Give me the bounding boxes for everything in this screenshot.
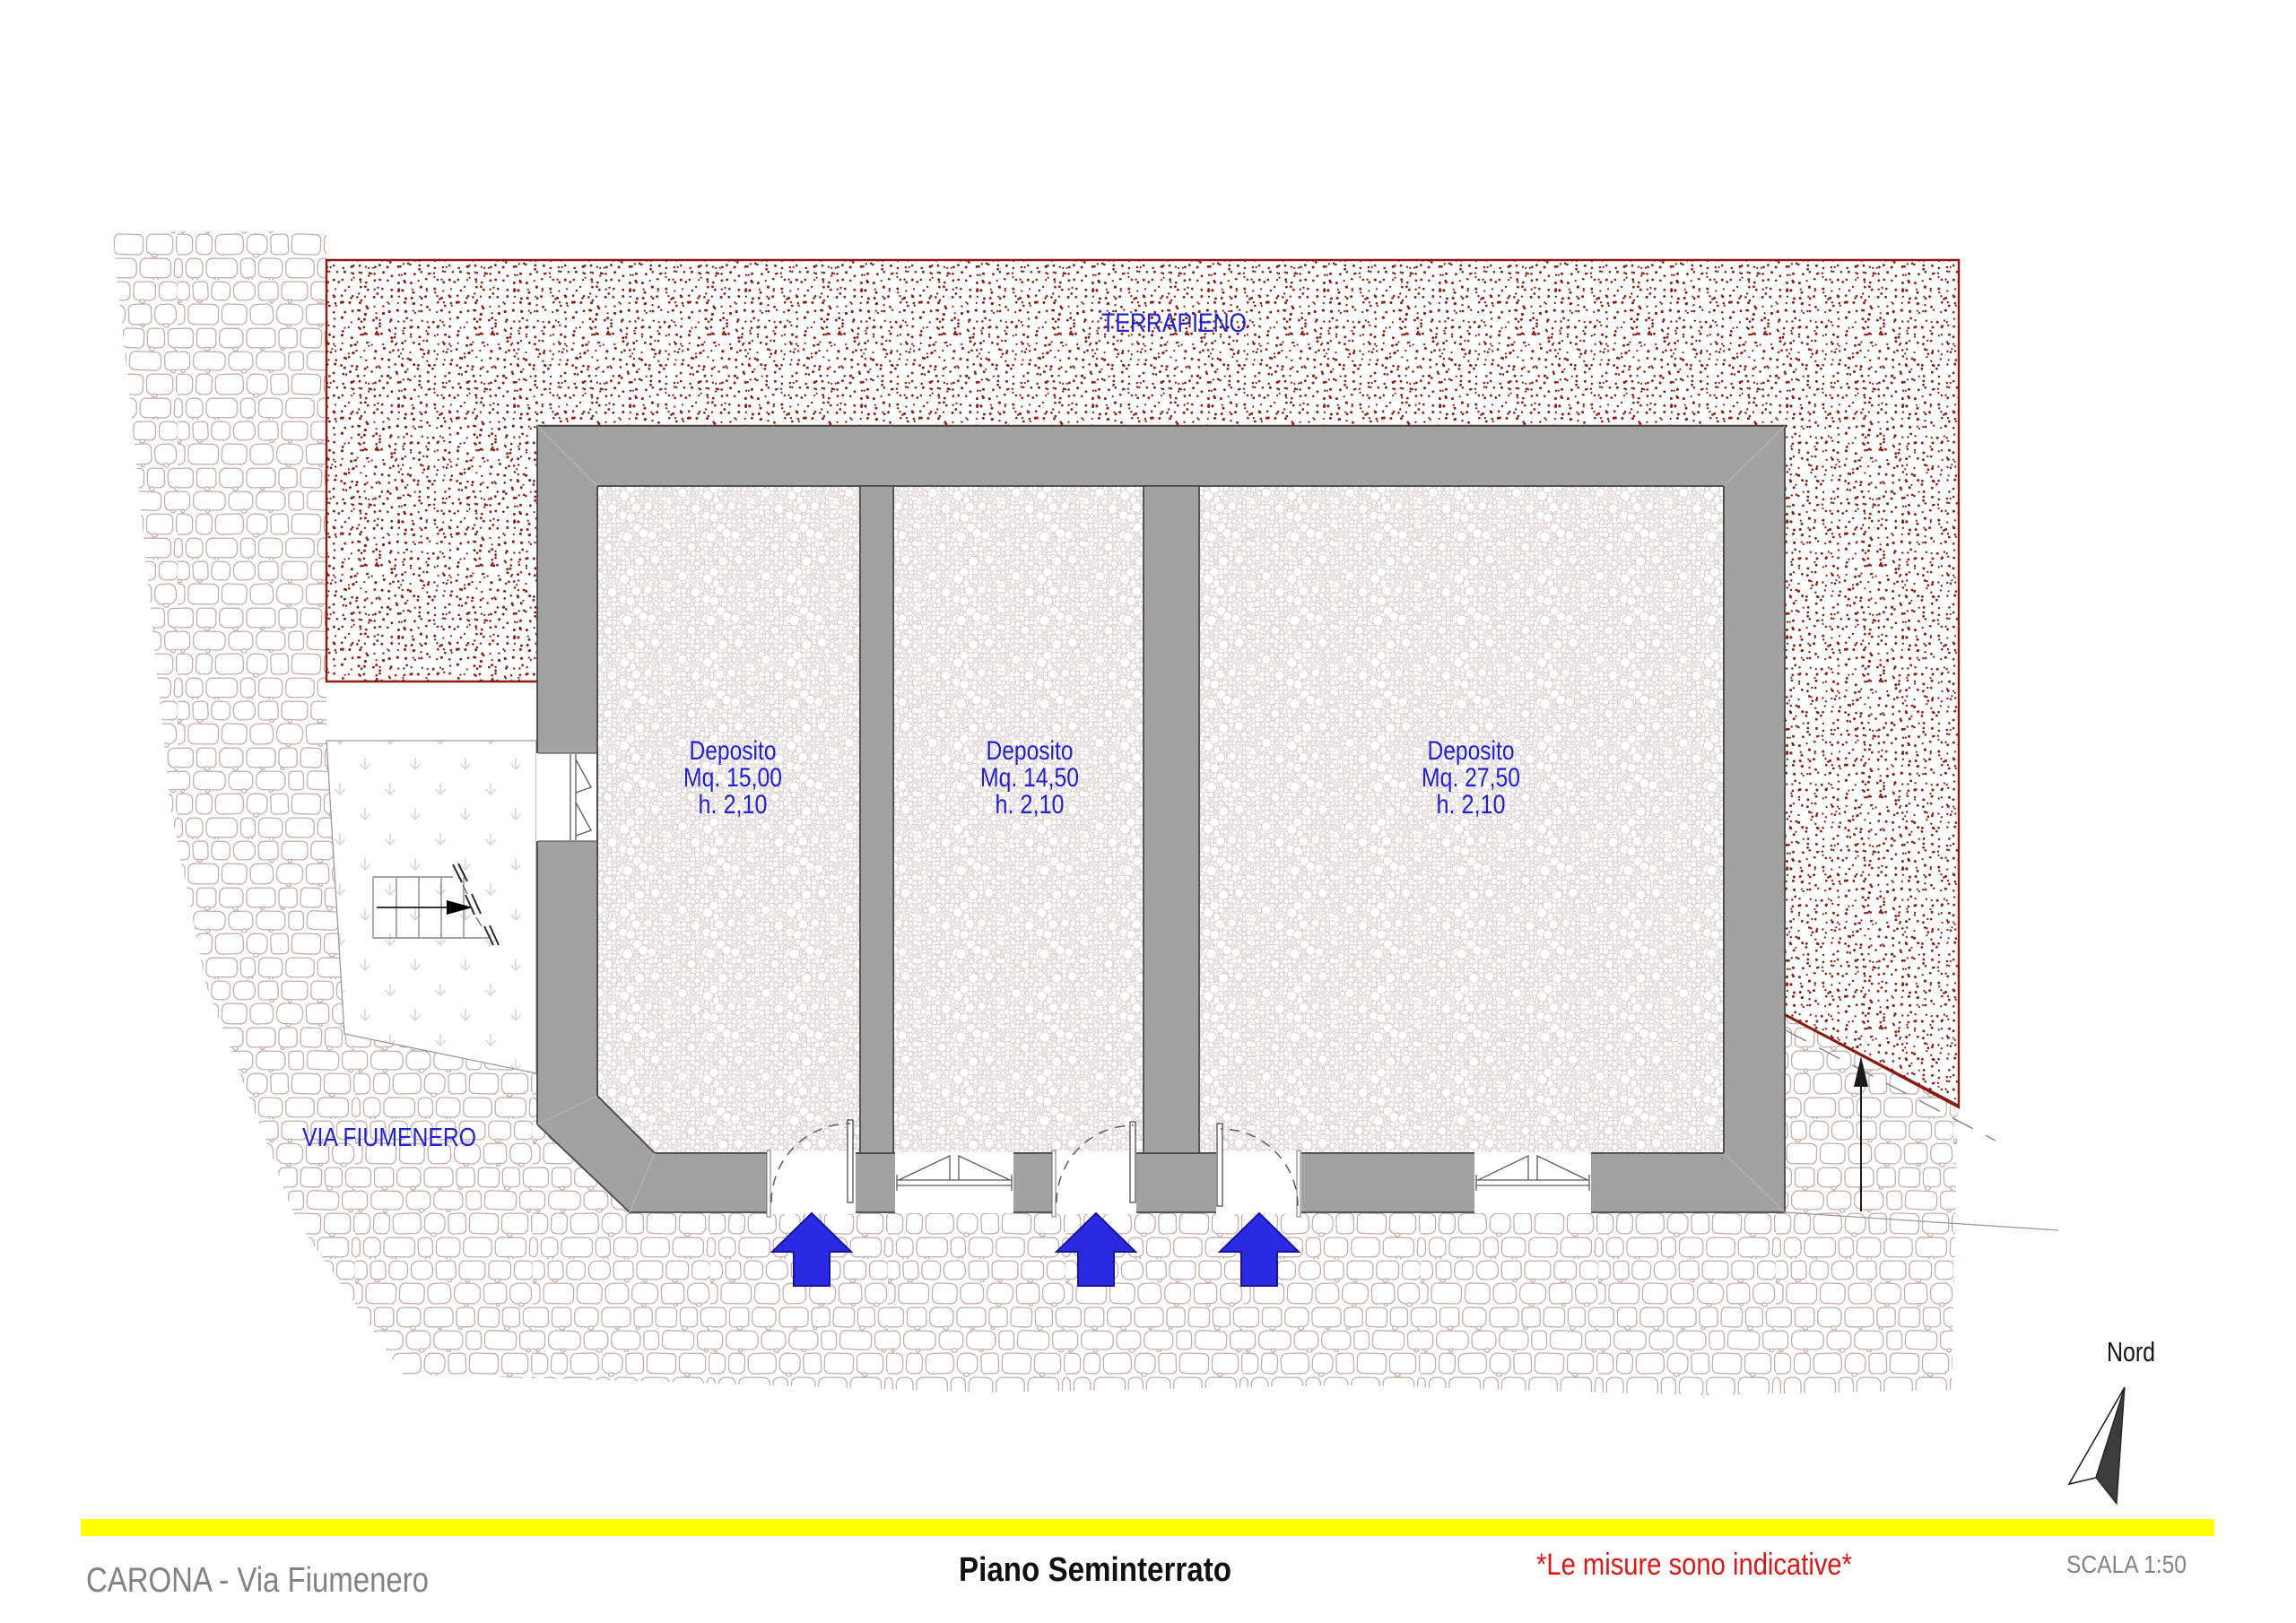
svg-text:*Le misure sono indicative*: *Le misure sono indicative* <box>1536 1548 1852 1582</box>
svg-text:Deposito: Deposito <box>1428 736 1515 766</box>
svg-text:SCALA 1:50: SCALA 1:50 <box>2066 1550 2187 1578</box>
svg-text:VIA FIUMENERO: VIA FIUMENERO <box>302 1124 476 1152</box>
svg-text:Deposito: Deposito <box>690 736 777 766</box>
svg-text:Nord: Nord <box>2107 1336 2155 1367</box>
svg-text:Deposito: Deposito <box>987 736 1074 766</box>
svg-text:h. 2,10: h. 2,10 <box>996 790 1065 820</box>
svg-text:TERRAPIENO: TERRAPIENO <box>1101 308 1247 338</box>
svg-text:Mq. 15,00: Mq. 15,00 <box>683 763 782 793</box>
svg-text:Mq. 14,50: Mq. 14,50 <box>980 763 1079 793</box>
svg-text:Piano Seminterrato: Piano Seminterrato <box>959 1551 1231 1589</box>
svg-text:Mq. 27,50: Mq. 27,50 <box>1422 763 1520 793</box>
svg-text:h. 2,10: h. 2,10 <box>1437 790 1506 820</box>
svg-text:CARONA - Via Fiumenero: CARONA - Via Fiumenero <box>86 1561 429 1600</box>
svg-text:h. 2,10: h. 2,10 <box>699 790 768 820</box>
